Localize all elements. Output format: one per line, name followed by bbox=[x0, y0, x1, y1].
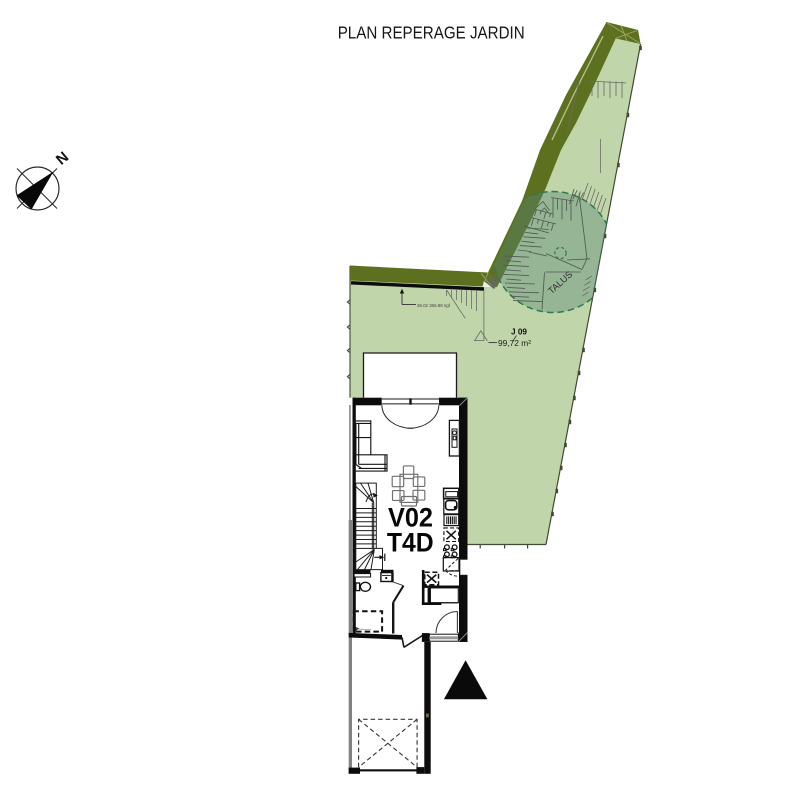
svg-text:J 09: J 09 bbox=[511, 328, 527, 337]
svg-text:PLAN REPERAGE JARDIN: PLAN REPERAGE JARDIN bbox=[338, 23, 525, 43]
svg-text:T4D: T4D bbox=[387, 528, 434, 558]
svg-text:99,72 m²: 99,72 m² bbox=[498, 338, 531, 348]
svg-text:36.02 366.88 ngf: 36.02 366.88 ngf bbox=[417, 303, 451, 308]
svg-text:N: N bbox=[53, 149, 72, 169]
